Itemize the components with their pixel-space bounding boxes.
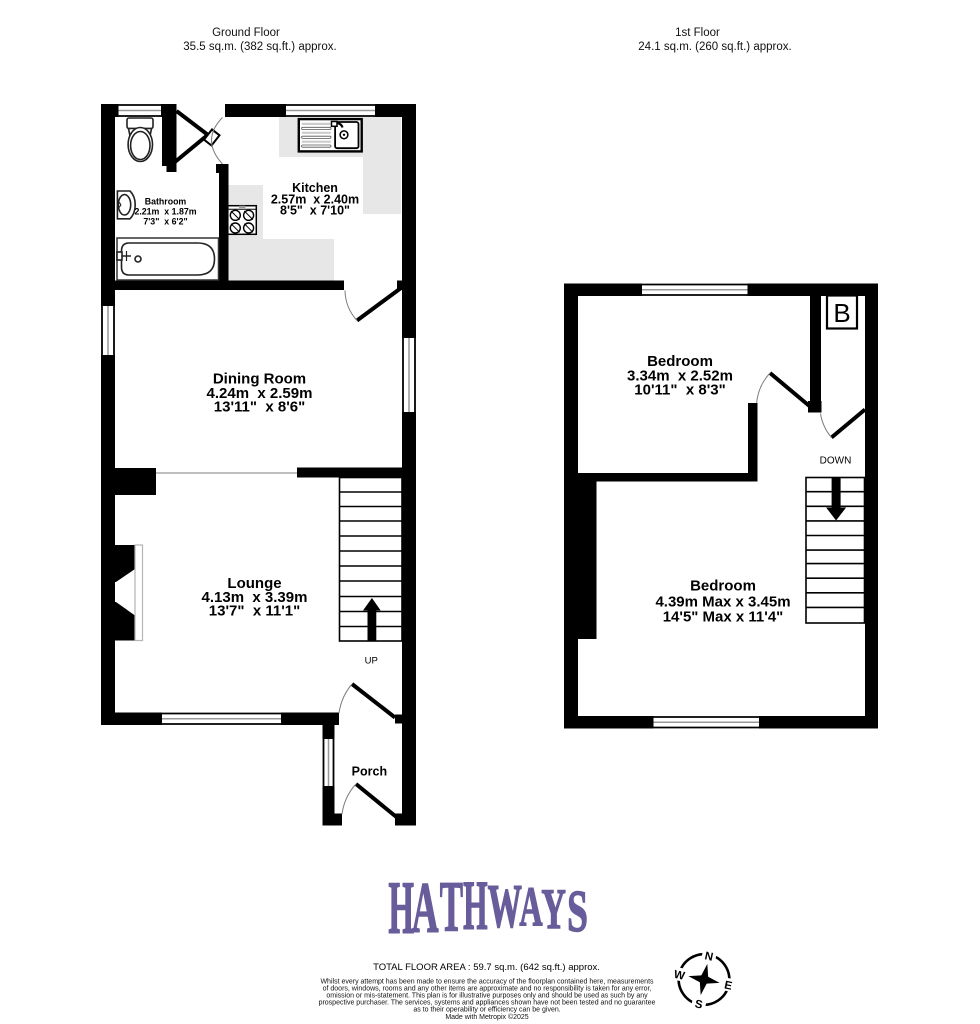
svg-text:Y: Y (541, 878, 565, 941)
svg-text:DOWN: DOWN (820, 455, 852, 466)
svg-text:7'3" x 6'2": 7'3" x 6'2" (143, 216, 187, 226)
svg-text:TOTAL FLOOR AREA : 59.7 sq.m.: TOTAL FLOOR AREA : 59.7 sq.m. (642 sq.ft… (373, 962, 600, 973)
svg-text:UP: UP (365, 655, 378, 666)
svg-text:B: B (833, 298, 850, 328)
svg-text:H: H (463, 867, 488, 944)
svg-text:prospective purchaser. The ser: prospective purchaser. The services, sys… (319, 1000, 656, 1007)
svg-text:Porch: Porch (352, 765, 387, 779)
svg-text:omission or mis-statement. Thi: omission or mis-statement. This plan is … (326, 993, 648, 1000)
svg-text:Ground Floor: Ground Floor (212, 27, 280, 39)
svg-text:of doors, windows, rooms and a: of doors, windows, rooms and any other i… (323, 985, 652, 992)
svg-text:13'7" x 11'1": 13'7" x 11'1" (209, 603, 300, 620)
svg-text:W: W (488, 872, 522, 940)
svg-text:Made with Metropix ©2025: Made with Metropix ©2025 (445, 1013, 528, 1021)
svg-text:13'11" x 8'6": 13'11" x 8'6" (214, 399, 305, 416)
svg-text:T: T (440, 868, 463, 947)
svg-text:35.5 sq.m. (382 sq.ft.) approx: 35.5 sq.m. (382 sq.ft.) approx. (183, 41, 336, 53)
svg-text:Bedroom: Bedroom (690, 577, 756, 594)
svg-text:S: S (567, 878, 588, 944)
svg-text:A: A (519, 875, 542, 938)
svg-text:Bathroom: Bathroom (145, 197, 187, 207)
svg-text:14'5" Max x 11'4": 14'5" Max x 11'4" (663, 608, 784, 625)
svg-text:1st Floor: 1st Floor (675, 27, 720, 39)
svg-text:8'5" x 7'10": 8'5" x 7'10" (280, 203, 350, 217)
svg-text:Whilst every attempt has been: Whilst every attempt has been made to en… (320, 978, 654, 985)
svg-text:2.21m x 1.87m: 2.21m x 1.87m (134, 206, 196, 216)
svg-text:24.1 sq.m. (260 sq.ft.) approx: 24.1 sq.m. (260 sq.ft.) approx. (638, 41, 791, 53)
svg-text:H: H (388, 866, 414, 950)
svg-text:10'11" x 8'3": 10'11" x 8'3" (634, 382, 725, 399)
svg-text:as to their operability or eff: as to their operability or efficiency ca… (413, 1007, 560, 1014)
svg-text:A: A (412, 869, 439, 948)
